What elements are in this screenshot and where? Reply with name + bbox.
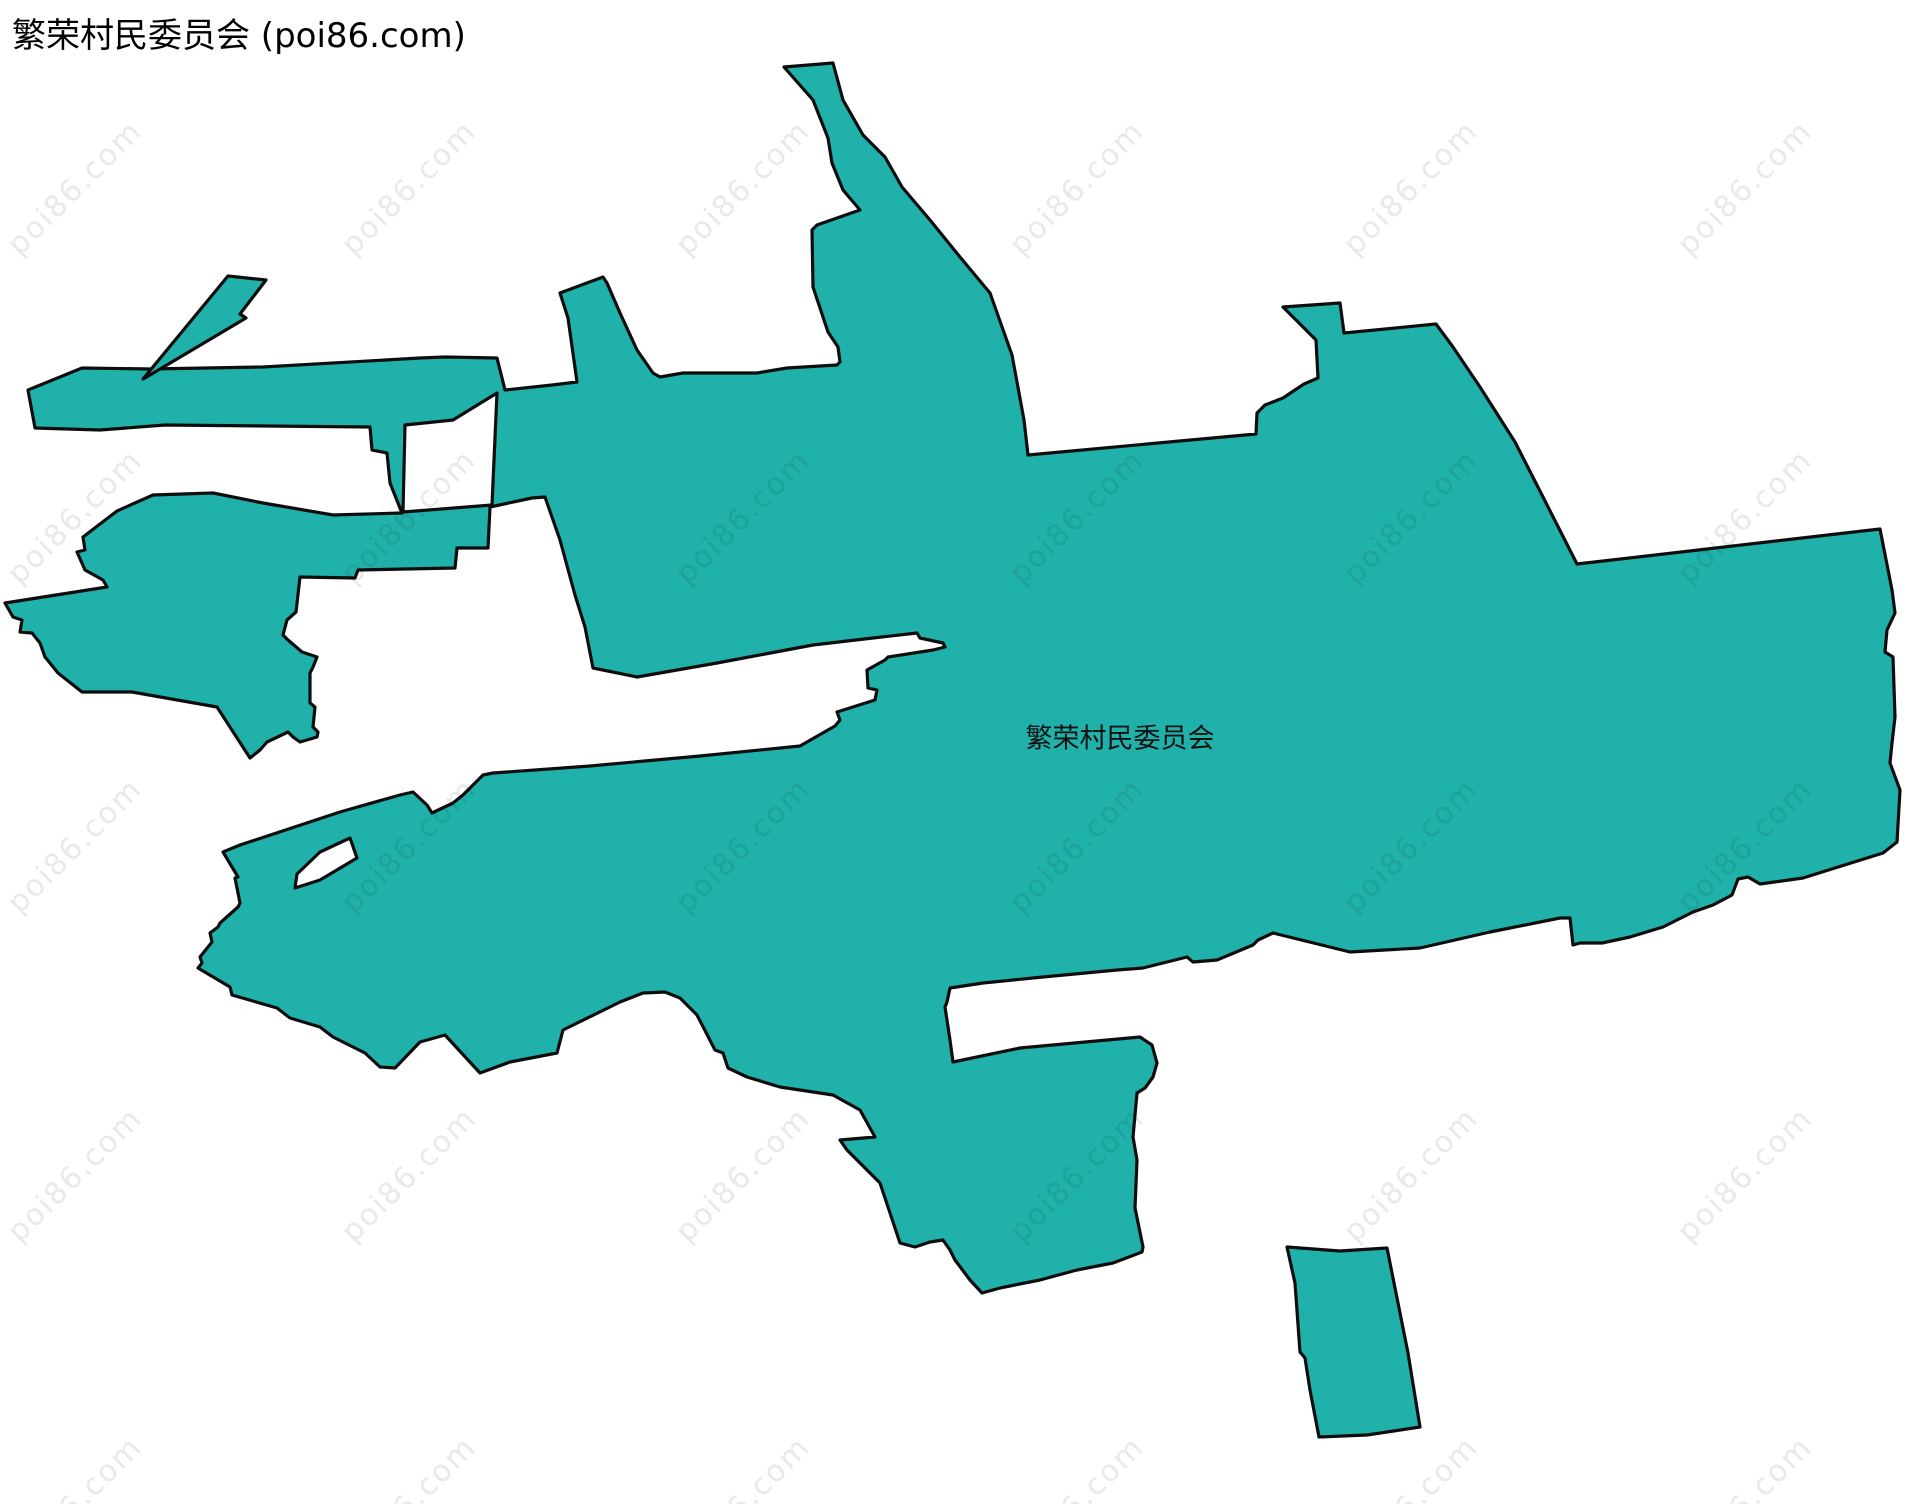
region-fill-group bbox=[5, 63, 1900, 1437]
detached-wedge-shape[interactable] bbox=[143, 276, 266, 379]
map-canvas bbox=[0, 0, 1920, 1504]
page-title: 繁荣村民委员会 (poi86.com) bbox=[12, 8, 466, 57]
map-viewport: poi86.compoi86.compoi86.compoi86.compoi8… bbox=[0, 0, 1920, 1504]
detached-parcel-shape[interactable] bbox=[1287, 1247, 1420, 1437]
region-label: 繁荣村民委员会 bbox=[1026, 717, 1215, 756]
main-region-shape[interactable] bbox=[5, 63, 1900, 1293]
